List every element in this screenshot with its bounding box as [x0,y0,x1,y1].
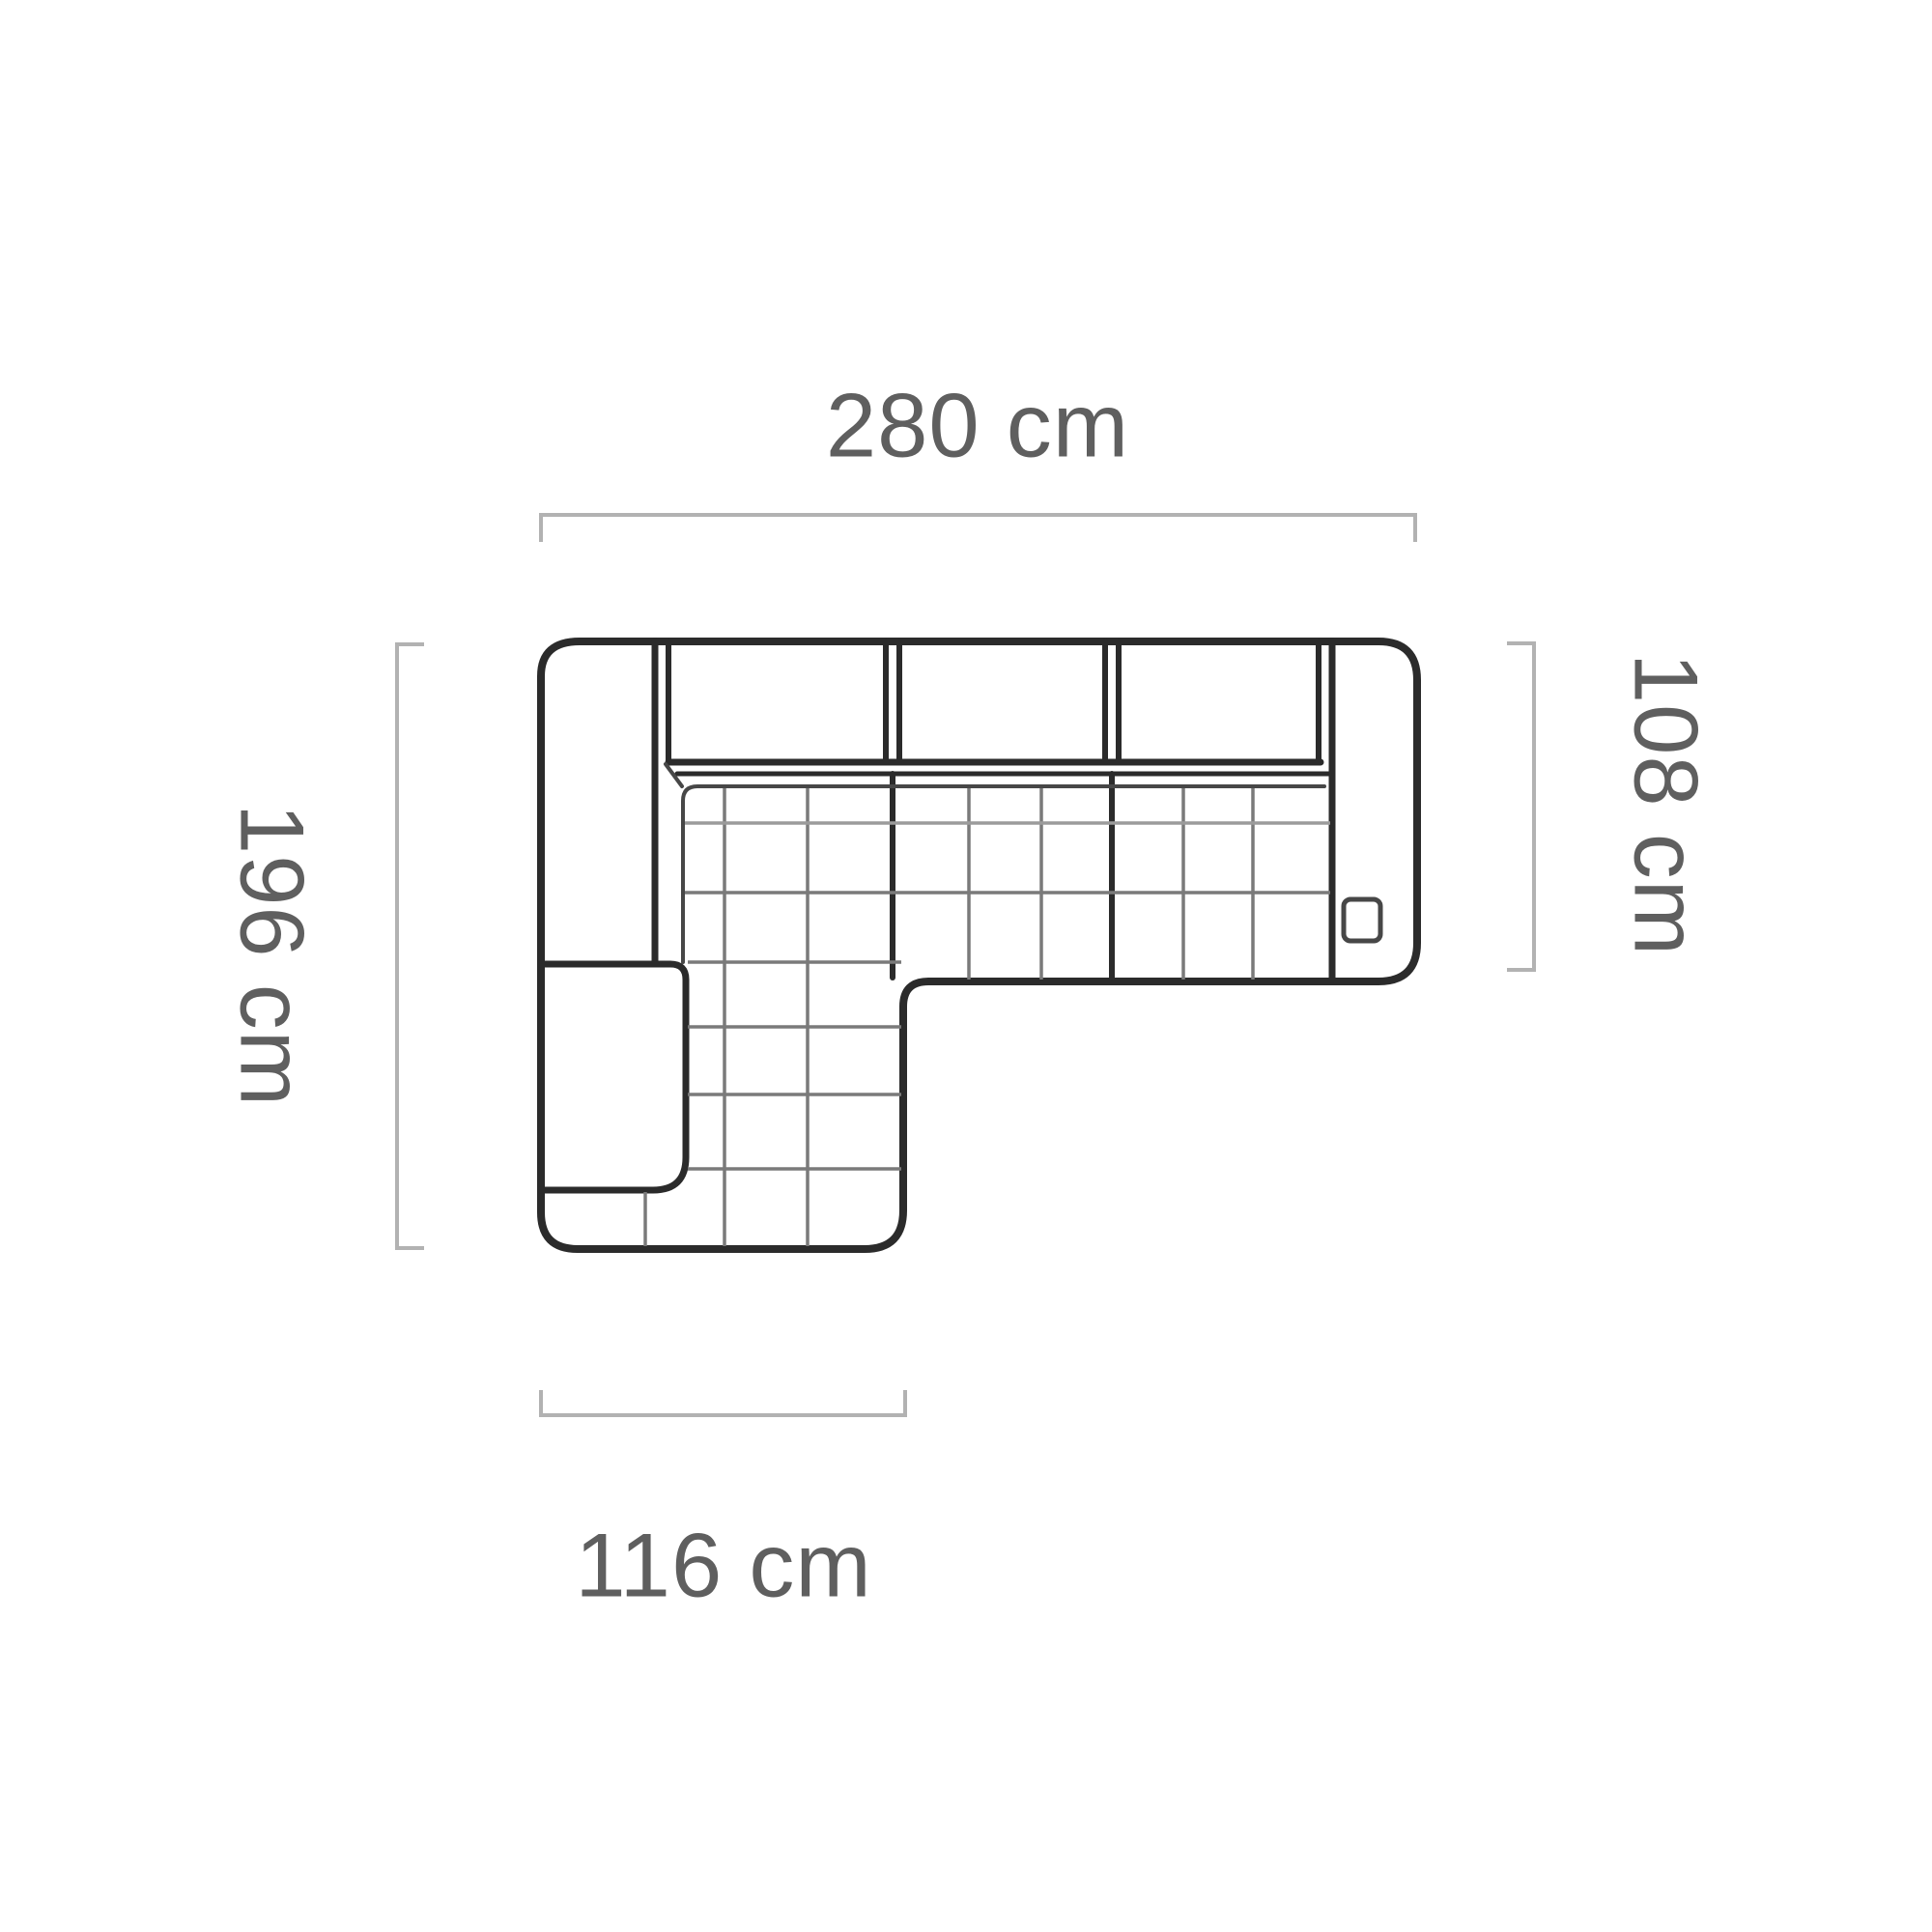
sofa-outline [541,641,1417,1249]
dimension-annotations: 280 cm 196 cm 108 cm 116 cm [222,375,1718,1616]
dimension-label-right: 108 cm [1616,653,1718,956]
diagram-svg: 280 cm 196 cm 108 cm 116 cm [0,0,1932,1932]
dimension-line-top [541,515,1415,542]
dimension-line-bottom [541,1390,905,1415]
quilt-border [683,786,1324,962]
dimension-line-left [397,644,424,1248]
chaise-side-piece [541,964,686,1190]
dimension-label-bottom: 116 cm [575,1515,871,1616]
quilt-grid [645,764,1330,1246]
sofa-dimension-diagram: 280 cm 196 cm 108 cm 116 cm [0,0,1932,1932]
dimension-label-left: 196 cm [222,804,324,1107]
dimension-line-right [1507,643,1534,970]
sofa-outer-silhouette [541,641,1417,1249]
dimension-label-top: 280 cm [826,375,1129,476]
armrest-control-detail [1344,899,1380,941]
